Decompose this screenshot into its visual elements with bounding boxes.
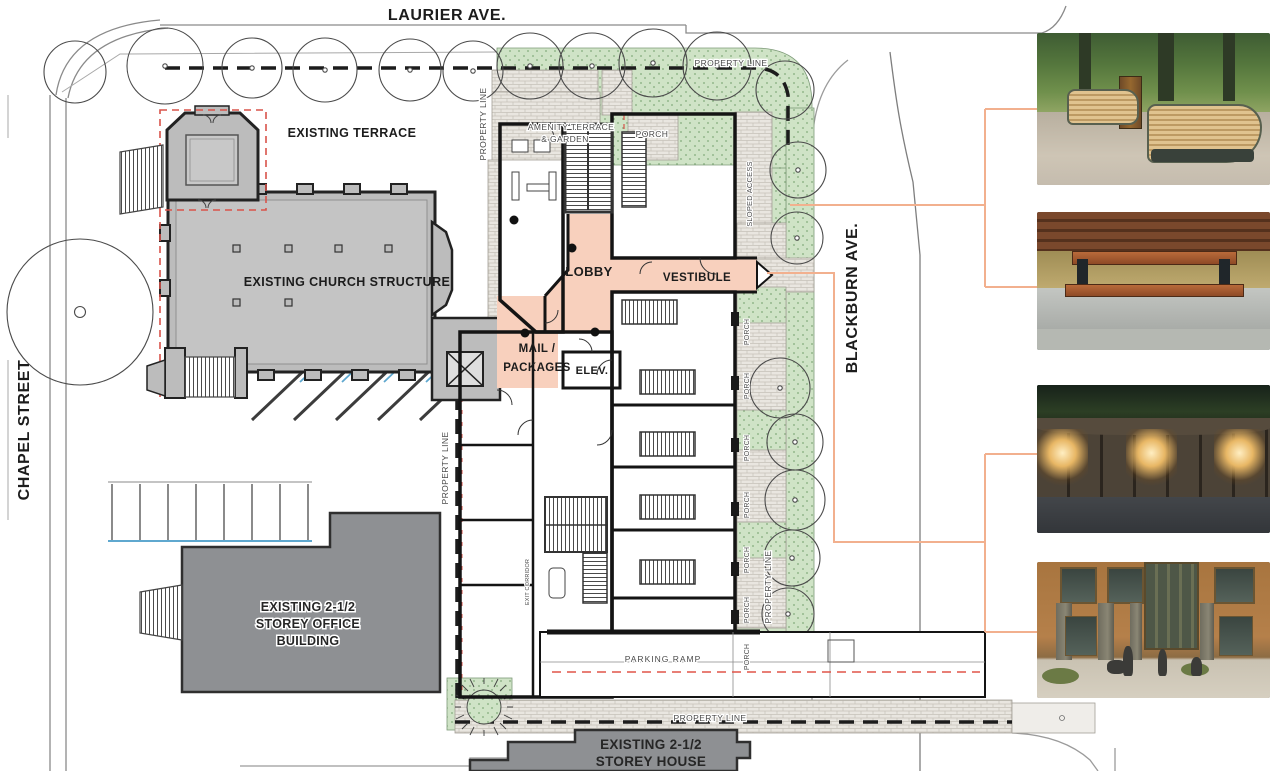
upper-window [1214,567,1255,604]
storefront-window [1219,616,1254,656]
curved-bench-small [1067,89,1139,125]
label-porch-top: PORCH [636,129,669,139]
photo-stone-wall-lighting [1037,385,1270,533]
church-entry-stairs [120,145,163,214]
label-existing-church: EXISTING CHURCH STRUCTURE [244,275,451,289]
label-porch-1: PORCH [744,319,751,345]
label-porch-4: PORCH [744,492,751,518]
label-sloped-access: SLOPED ACCESS [745,161,754,227]
label-parking-ramp: PARKING RAMP [625,654,702,664]
bench-backrest [1072,251,1237,265]
label-porch-2: PORCH [744,373,751,399]
label-property-line-nw: PROPERTY LINE [478,88,488,161]
photo-street-bench [1037,212,1270,350]
person-figure [1191,657,1203,676]
bench-seat [1065,284,1244,297]
church-south-stairs [185,357,235,397]
street-label-blackburn: BLACKBURN AVE. [844,223,861,374]
label-exit-corridor: EXIT CORRIDOR [525,559,531,605]
label-property-line-ne: PROPERTY LINE [695,58,768,68]
photo-entrance-rendering [1037,562,1270,698]
label-elevator: ELEV. [576,365,609,377]
label-amenity-1: AMENITY TERRACE [528,122,614,132]
upper-window [1107,567,1144,604]
label-office-2: STOREY OFFICE [256,617,360,631]
label-property-line-e: PROPERTY LINE [763,551,773,624]
church-apse [432,222,452,315]
existing-church [120,106,500,400]
label-porch-7: PORCH [744,644,751,670]
site-plan-page: LAURIER AVE. CHAPEL STREET BLACKBURN AVE… [0,0,1280,771]
label-amenity-2: & GARDEN [541,134,589,144]
wall-light [1214,429,1265,488]
label-mail-1: MAIL / [519,343,556,355]
label-porch-6: PORCH [744,597,751,623]
upper-window [1060,567,1097,604]
glazed-entry-bay [1144,562,1199,650]
label-house-2: STOREY HOUSE [596,754,706,769]
wall-light [1037,429,1088,488]
photo-park-benches [1037,33,1270,185]
street-label-laurier: LAURIER AVE. [388,7,506,24]
wall-light [1126,429,1177,488]
bicycles [1107,660,1126,674]
new-building [460,114,985,697]
label-porch-5: PORCH [744,547,751,573]
facade-column [1200,603,1214,660]
roadway [1037,497,1270,533]
label-property-line-w: PROPERTY LINE [440,432,450,505]
label-porch-3: PORCH [744,435,751,461]
label-mail-2: PACKAGES [503,362,571,374]
street-label-chapel: CHAPEL STREET [16,360,33,501]
facade-column [1098,603,1114,660]
label-lobby: LOBBY [565,264,613,279]
bench-shadow [1151,149,1254,163]
tree-trunk [1158,33,1174,101]
office-entry-stairs [140,585,182,640]
sidewalk [1037,329,1270,350]
label-existing-terrace: EXISTING TERRACE [288,126,417,140]
label-office-3: BUILDING [277,634,340,648]
parking-ramp-area [540,632,985,697]
person-figure [1158,649,1167,676]
storefront-window [1065,616,1097,656]
label-office-1: EXISTING 2-1/2 [261,600,356,614]
label-house-1: EXISTING 2-1/2 [600,737,702,752]
tree-trunk [1223,33,1235,101]
label-property-line-s: PROPERTY LINE [674,713,747,723]
label-vestibule: VESTIBULE [663,272,731,284]
